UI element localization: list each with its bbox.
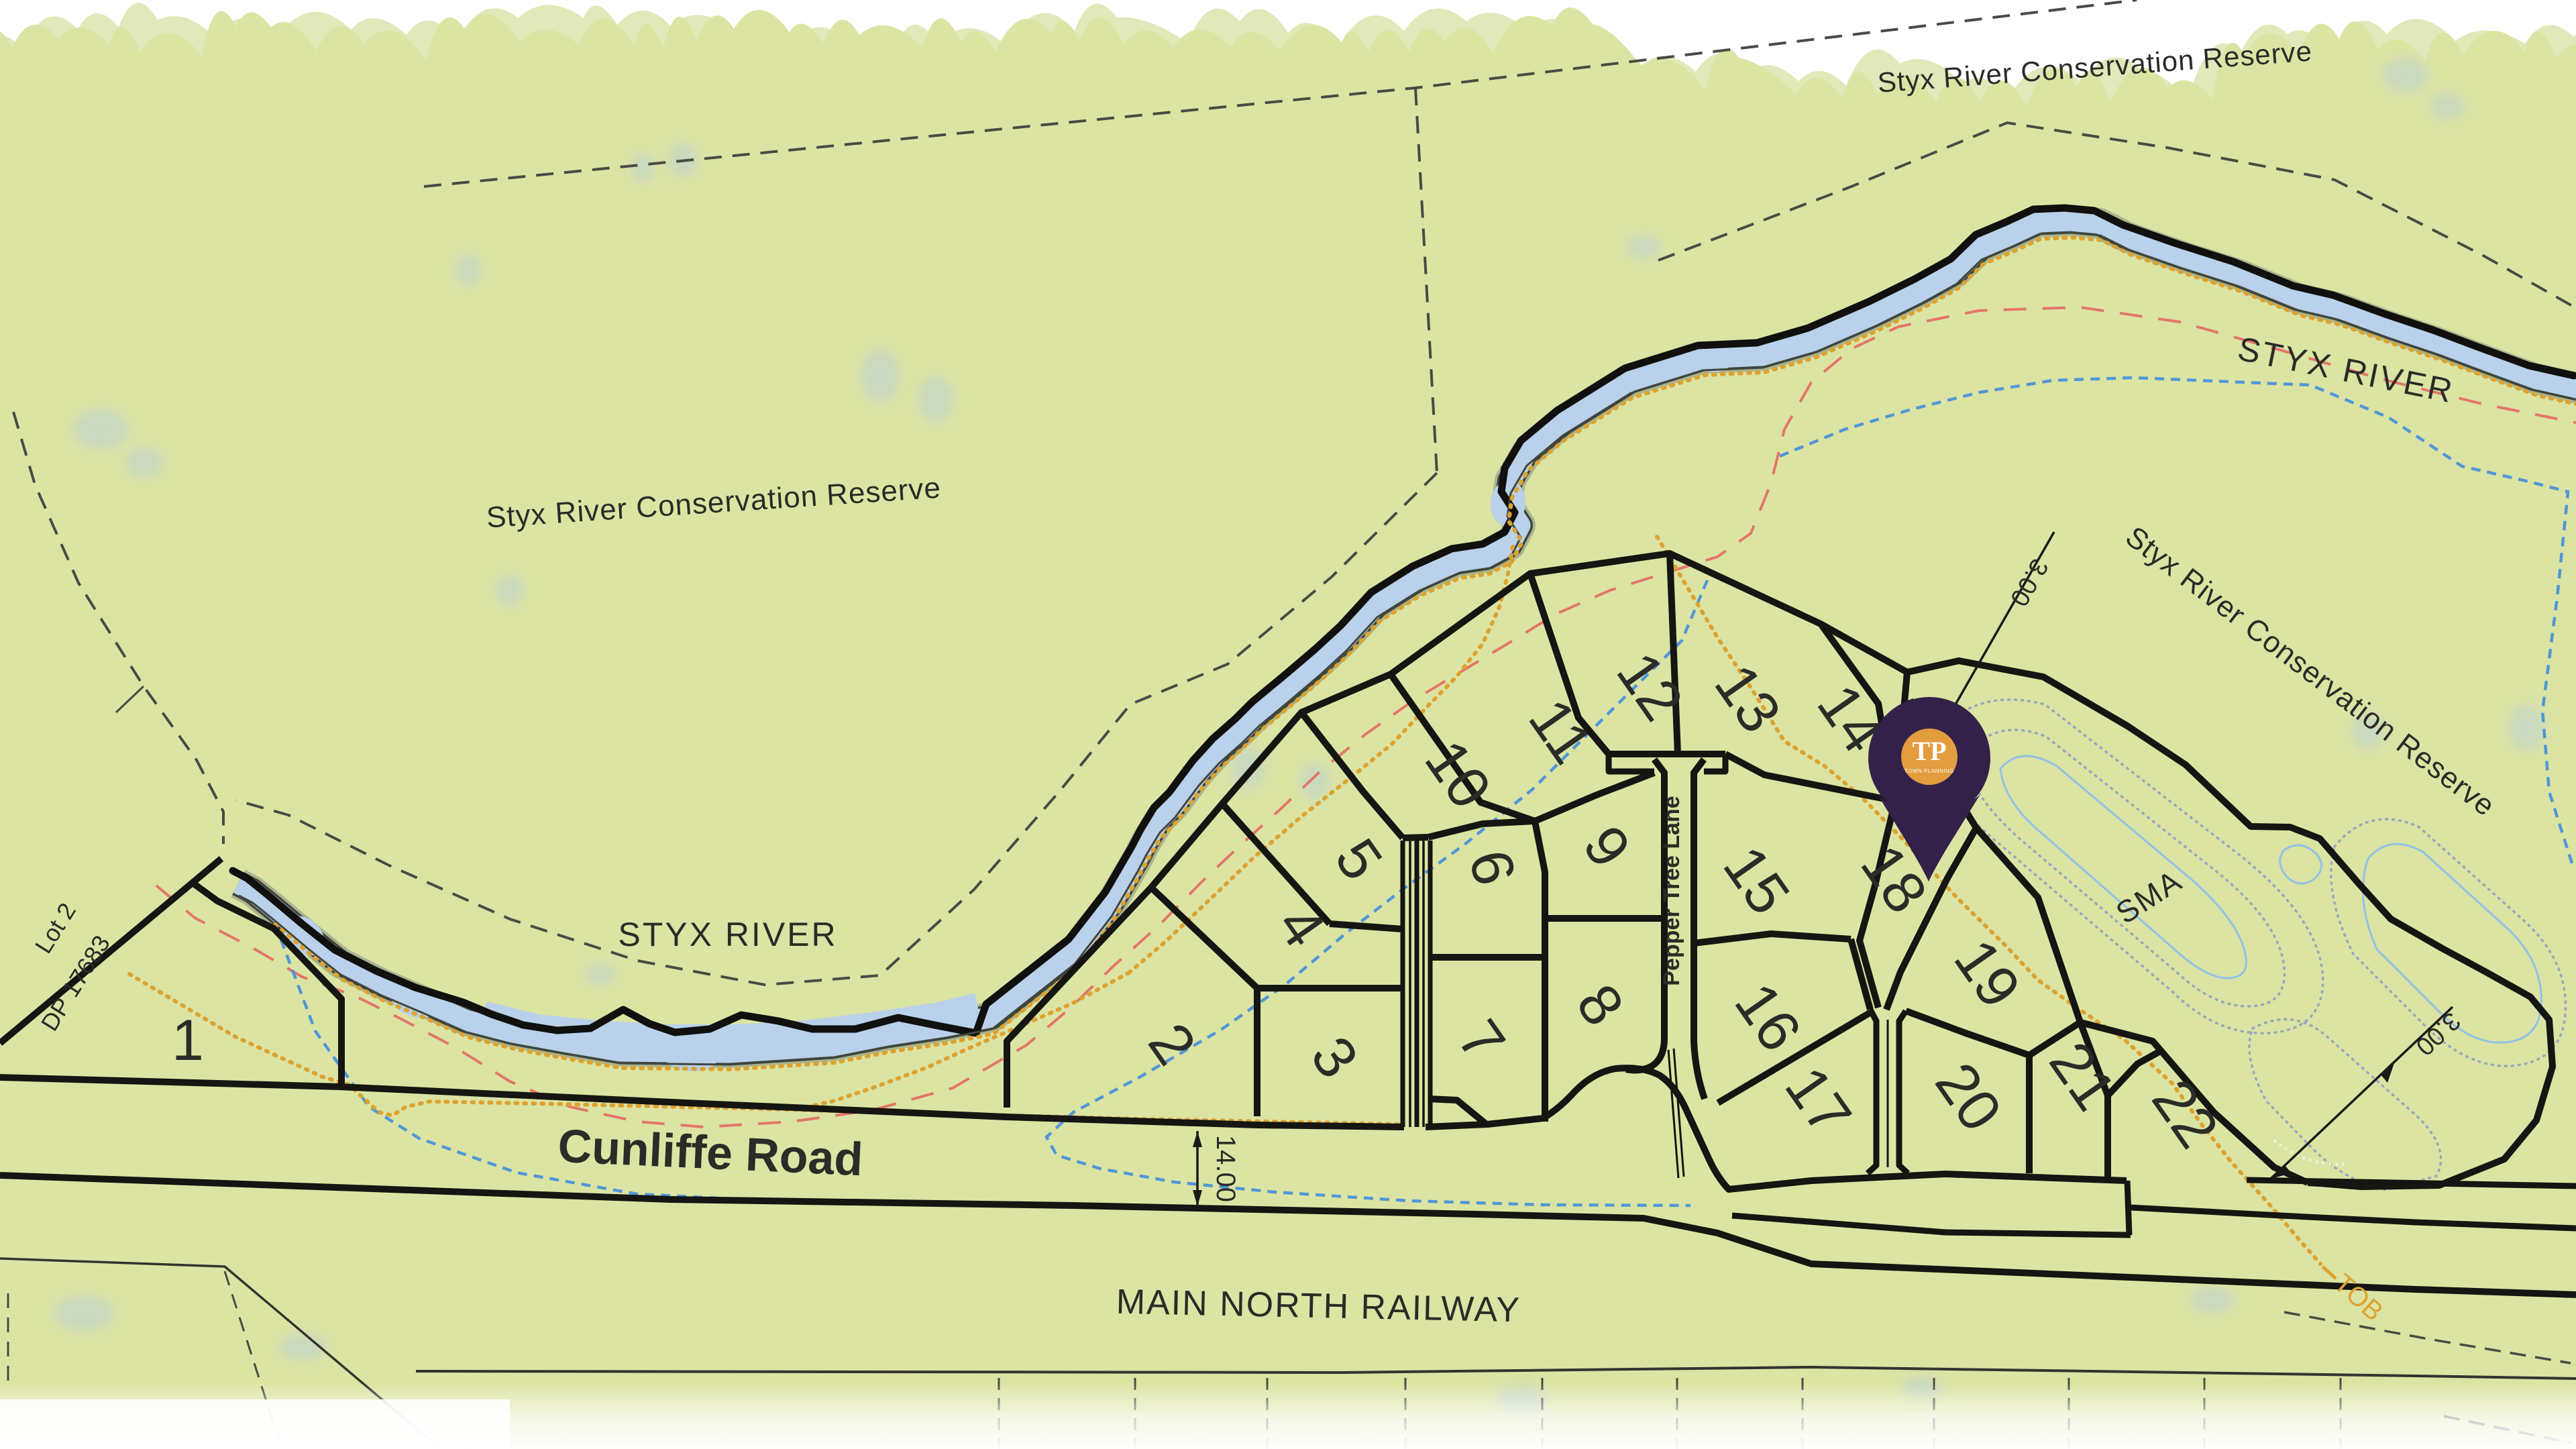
svg-text:TP: TP — [1912, 736, 1946, 766]
svg-text:STYX RIVER: STYX RIVER — [618, 916, 837, 953]
svg-text:Pepper Tree Lane: Pepper Tree Lane — [1659, 796, 1684, 985]
svg-text:TOWN PLANNING: TOWN PLANNING — [1904, 768, 1954, 774]
svg-text:14.00: 14.00 — [1211, 1135, 1240, 1202]
svg-text:1: 1 — [172, 1008, 204, 1073]
